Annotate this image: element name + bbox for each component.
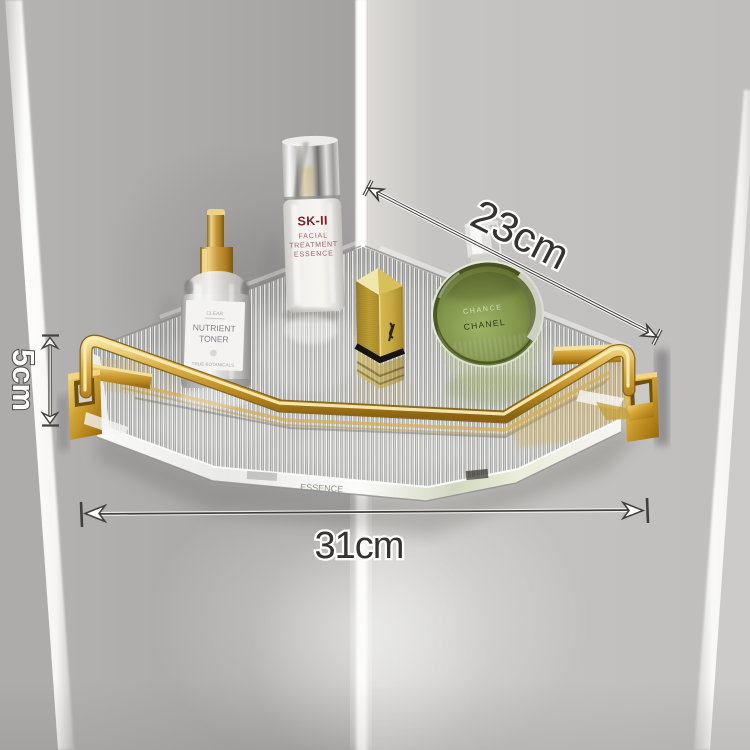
svg-text:31cm: 31cm (315, 525, 404, 567)
svg-text:TONER: TONER (199, 333, 229, 344)
svg-text:NUTRIENT: NUTRIENT (193, 322, 236, 333)
svg-text:ESSENCE: ESSENCE (294, 250, 334, 258)
svg-text:CLEAR: CLEAR (206, 311, 223, 318)
svg-text:5cm: 5cm (6, 349, 41, 411)
svg-text:FACIAL: FACIAL (298, 232, 328, 240)
svg-text:SK-II: SK-II (297, 213, 328, 228)
